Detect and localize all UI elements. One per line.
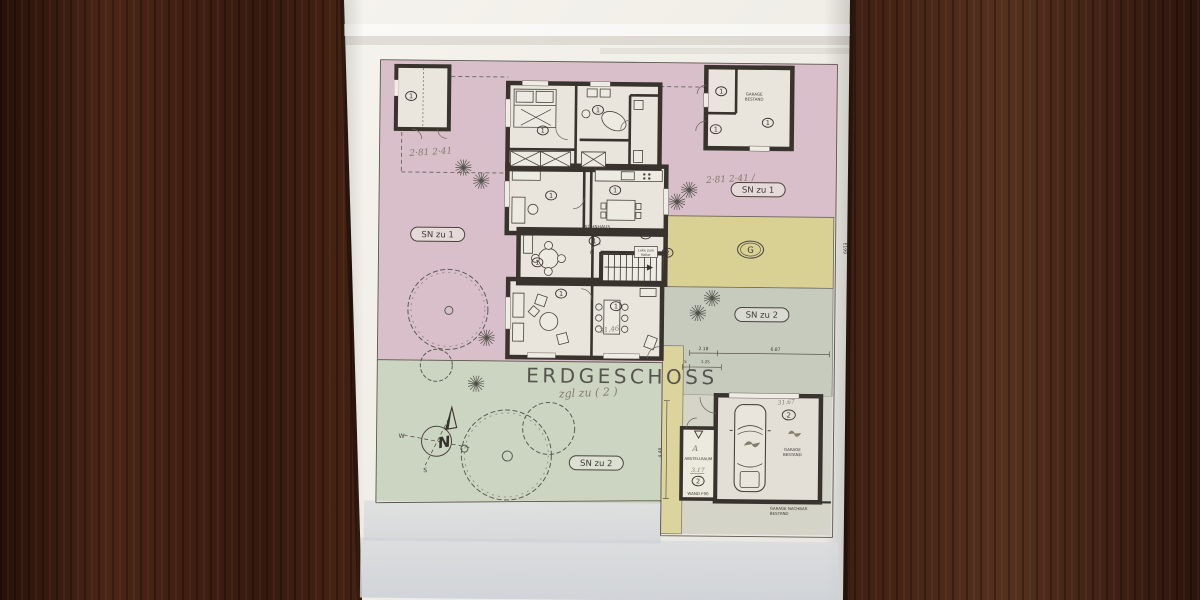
svg-text:1: 1 [593, 237, 597, 245]
window-gap [394, 80, 398, 96]
garage-label-line2: BESTAND [783, 452, 802, 457]
bush-icon [690, 305, 706, 321]
dim-garage-width: 2.18 [698, 346, 708, 352]
outbuilding-right-walls [706, 67, 793, 149]
staircase [602, 254, 662, 282]
luke-zum-keller: Luke zum Keller [634, 246, 657, 257]
outbuilding-walls [396, 66, 450, 130]
svg-text:1: 1 [409, 92, 413, 100]
wand-f90-label: WAND F90 [687, 491, 709, 496]
bush-icon [468, 376, 484, 392]
svg-text:1: 1 [549, 192, 553, 200]
bush-icon [479, 330, 495, 346]
window-gap [704, 93, 709, 107]
svg-text:1: 1 [614, 302, 618, 310]
paper-crease-faint [600, 48, 850, 54]
svg-text:1: 1 [719, 88, 723, 96]
dim-abstell-width: 1.25 [701, 359, 710, 364]
bed [514, 89, 556, 127]
nachbar-label-line2: BESTAND [770, 511, 789, 516]
abstellraum-walls [681, 428, 716, 499]
svg-text:2: 2 [696, 477, 700, 485]
svg-text:SN zu 1: SN zu 1 [421, 230, 454, 240]
car [729, 404, 771, 491]
svg-text:SN zu 1: SN zu 1 [742, 185, 775, 195]
svg-text:2: 2 [665, 249, 669, 257]
plan-drawing: 1 [360, 60, 850, 600]
parcel-note: E199 [841, 243, 847, 255]
svg-text:1: 1 [644, 231, 648, 239]
zone-label-sn1-right: SN zu 1 [731, 182, 785, 197]
paper-crease-highlight [344, 24, 850, 36]
outbuilding-top-left: 1 [394, 66, 450, 140]
main-building: WOHNHAUS BESTAND Luke zum Keller 1 1 1 1… [503, 81, 675, 360]
svg-text:1: 1 [541, 127, 545, 135]
svg-text:G: G [747, 246, 754, 256]
zone-label-sn1-left: SN zu 1 [411, 227, 465, 242]
svg-text:1: 1 [766, 119, 770, 127]
window-gap [750, 146, 770, 151]
handwritten-abstell-letter: A [691, 444, 698, 453]
svg-text:1: 1 [535, 259, 539, 267]
svg-text:1: 1 [613, 186, 617, 194]
bush-icon [704, 290, 720, 306]
closets [510, 151, 605, 167]
paper-bottom-tint-left [363, 501, 660, 544]
svg-text:SN zu 2: SN zu 2 [580, 459, 613, 469]
svg-text:1: 1 [596, 106, 600, 114]
neighbor-garage-wall [715, 501, 831, 502]
zone-label-sn2-right: SN zu 2 [735, 307, 789, 322]
handwritten-title-note: zgl zu ( 2 ) [558, 385, 618, 400]
outbuilding-top-right: GARAGE BESTAND 1 1 1 [696, 67, 793, 152]
svg-text:1: 1 [559, 290, 563, 298]
bush-icon [473, 173, 489, 189]
garage-door-gap [729, 393, 799, 399]
svg-text:2: 2 [787, 412, 792, 420]
abstellraum-label: ABSTELLRAUM [684, 456, 712, 461]
bush-icon [681, 182, 697, 198]
handwritten-abstell-area: 3.17 [691, 467, 705, 474]
luke-label-line2: Keller [641, 253, 651, 257]
garage-walls [715, 395, 821, 502]
garage-top-label-line2: BESTAND [745, 97, 764, 102]
paper-edge-shade-left [344, 0, 364, 600]
svg-text:1: 1 [714, 125, 718, 133]
floorplan-photo: 1 [0, 0, 1200, 600]
compass-west: W [399, 433, 405, 440]
bush-icon [669, 194, 685, 210]
dim-garage-length: 6.87 [770, 347, 780, 353]
bush-icon [455, 159, 471, 175]
wohnhaus-label-line2: BESTAND [586, 229, 607, 234]
paper-bottom-tint [360, 538, 839, 600]
paper-crease-shadow [344, 36, 850, 45]
floor-block-bottom [507, 279, 662, 359]
zone-label-sn2-bottom: SN zu 2 [569, 456, 623, 471]
dim-garage-depth: 4.46 [657, 447, 663, 457]
svg-text:SN zu 2: SN zu 2 [746, 311, 779, 321]
compass-south: S [423, 467, 427, 474]
